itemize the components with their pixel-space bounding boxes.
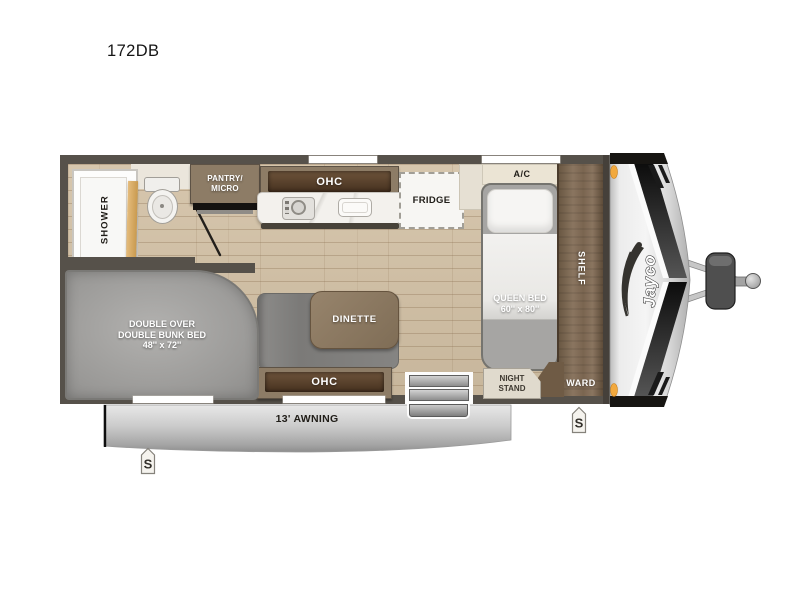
microwave-shelf: [197, 210, 253, 214]
speaker-marker-right: S: [571, 406, 587, 434]
clearance-light-bottom: [611, 384, 618, 397]
dinette-table: DINETTE: [310, 291, 399, 349]
speaker-letter: S: [144, 457, 153, 472]
awning-label: 13' AWNING: [262, 413, 352, 426]
queen-bed: QUEEN BED 60'' x 80'': [481, 183, 559, 371]
ward-label: WARD: [559, 378, 603, 389]
window-top-kitchen: [309, 156, 377, 163]
shower-label: SHOWER: [99, 196, 110, 245]
shelf-area: SHELF: [559, 248, 603, 288]
night-stand-label: NIGHT STAND: [499, 374, 526, 393]
pantry-micro-label: PANTRY/ MICRO: [207, 174, 243, 193]
hitch-ball: [746, 274, 761, 289]
dinette-ohc-label: OHC: [258, 368, 391, 398]
kitchen-base-cabinet: [261, 223, 399, 229]
stove-burner-icon: [291, 200, 306, 215]
sink-basin-icon: [342, 202, 368, 213]
pantry-micro-cabinet: PANTRY/ MICRO: [190, 164, 260, 204]
clearance-light-top: [611, 166, 618, 179]
kitchen-counter: [257, 192, 405, 225]
front-cap: Jayco: [606, 148, 774, 412]
speaker-letter: S: [575, 416, 584, 431]
toilet-flush-icon: [160, 204, 164, 208]
dinette-label: DINETTE: [332, 314, 376, 325]
ac-unit: A/C: [482, 164, 562, 185]
fridge-label: FRIDGE: [413, 195, 451, 206]
window-top-bedroom: [482, 156, 560, 163]
ac-label: A/C: [514, 169, 531, 180]
entry-step: [409, 375, 469, 387]
stove-knobs-icon: [285, 201, 289, 214]
shelf-label: SHELF: [576, 251, 587, 286]
propane-tank-highlight: [709, 256, 732, 266]
bunk-bed-label: DOUBLE OVER DOUBLE BUNK BED 48'' x 72'': [118, 319, 206, 351]
cap-bottom-bar: [610, 396, 668, 407]
shelf-wardrobe-wall: SHELF WARD: [557, 164, 603, 396]
night-stand: NIGHT STAND: [483, 368, 541, 399]
entry-step: [409, 389, 469, 401]
queen-pillow: [487, 189, 553, 233]
speaker-marker-left: S: [140, 447, 156, 475]
microwave: [193, 203, 257, 210]
cap-top-bar: [610, 153, 668, 164]
entry-step-fold-out: [409, 404, 468, 417]
sink-icon: [338, 198, 372, 217]
model-title: 172DB: [107, 42, 159, 61]
dinette-overhead-cabinet: OHC: [257, 367, 392, 399]
bunk-bed: DOUBLE OVER DOUBLE BUNK BED 48'' x 72'': [65, 270, 259, 400]
floorplan-canvas: 172DB SHOWER PANTRY/ MICRO OHC FRIDGE A/…: [0, 0, 800, 600]
fridge: FRIDGE: [399, 172, 464, 229]
jayco-logo: Jayco: [640, 254, 659, 307]
queen-bed-label: QUEEN BED 60'' x 80'': [483, 293, 557, 315]
